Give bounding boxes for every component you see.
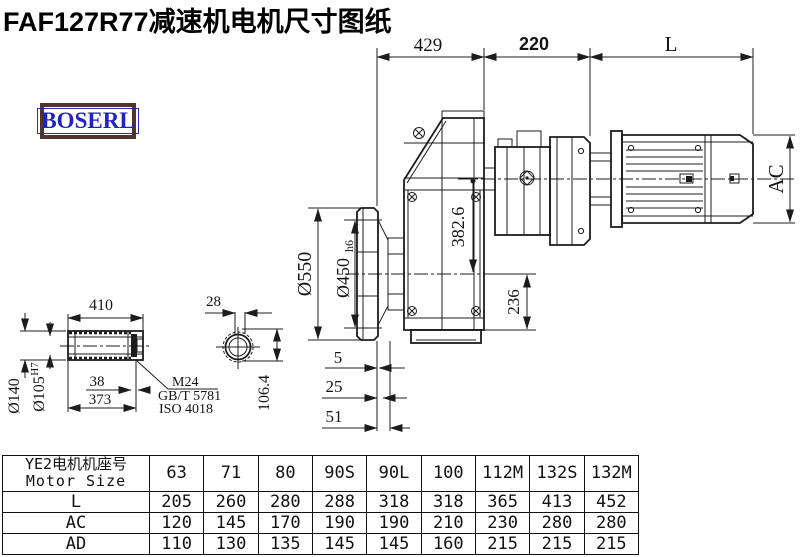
table-cell: 280 (530, 512, 584, 533)
dim-flange-od: Ø550 (294, 252, 316, 296)
dim-key-width: 28 (206, 294, 221, 310)
dim-step-25: 25 (326, 377, 343, 396)
table-cell: 120 (150, 512, 204, 533)
label-bolt: M24 (172, 375, 198, 390)
table-cell: 280 (258, 491, 312, 512)
table-cell: 215 (475, 533, 529, 554)
table-header-motor-size: YE2电机机座号 Motor Size (3, 456, 150, 492)
table-cell: 280 (584, 512, 638, 533)
dim-step-51: 51 (326, 407, 343, 426)
table-header-en: Motor Size (3, 473, 149, 490)
table-header-cn: YE2电机机座号 (3, 456, 149, 473)
input-center-mark-icon (520, 171, 534, 185)
table-cell: 365 (475, 491, 529, 512)
brand-logo-text: BOSERL (37, 108, 138, 134)
gearbox-view (345, 111, 500, 431)
table-cell: 288 (312, 491, 366, 512)
dim-spigot-tolerance: h6 (342, 240, 356, 252)
dim-429: 429 (414, 35, 443, 56)
technical-drawing: 429 220 L (0, 0, 800, 455)
table-cell: 452 (584, 491, 638, 512)
table-col-header: 80 (258, 456, 312, 492)
dim-220: 220 (519, 34, 549, 54)
table-cell: 160 (421, 533, 475, 554)
dim-shaft-od: Ø140 (6, 378, 23, 414)
table-row-AC: AC 120 145 170 190 190 210 230 280 280 (3, 512, 639, 533)
dim-foot-height: 236 (504, 289, 523, 315)
table-col-header: 90L (367, 456, 421, 492)
table-col-header: 71 (204, 456, 258, 492)
dim-step-5: 5 (334, 348, 343, 367)
dim-bore-tolerance: H7 (29, 362, 41, 376)
top-dimensions: 429 220 L (377, 32, 753, 206)
row-label: AC (3, 512, 150, 533)
dim-spigot: Ø450 (333, 258, 353, 298)
table-row-L: L 205 260 280 288 318 318 365 413 452 (3, 491, 639, 512)
table-cell: 260 (204, 491, 258, 512)
dim-shaft-inner-length: 373 (89, 392, 112, 408)
page: 429 220 L (0, 0, 800, 557)
label-bolt-standard-iso: ISO 4018 (159, 402, 213, 417)
table-cell: 215 (530, 533, 584, 554)
table-cell: 135 (258, 533, 312, 554)
row-label: L (3, 491, 150, 512)
dim-shaft-length: 410 (89, 297, 113, 314)
table-col-header: 63 (150, 456, 204, 492)
shaft-dimensions: 410 Ø140 Ø105 H7 38 373 M24 GB/T 5781 IS… (6, 297, 221, 417)
table-cell: 170 (258, 512, 312, 533)
table-cell: 318 (367, 491, 421, 512)
gearbox-dimensions: 382.6 236 (448, 179, 536, 331)
dim-L: L (665, 32, 678, 56)
table-cell: 145 (312, 533, 366, 554)
table-cell: 205 (150, 491, 204, 512)
table-col-header: 132S (530, 456, 584, 492)
table-cell: 215 (584, 533, 638, 554)
dim-key-height: 106.4 (256, 375, 273, 411)
motor-view (458, 131, 795, 227)
table-col-header: 132M (584, 456, 638, 492)
table-cell: 210 (421, 512, 475, 533)
page-title: FAF127R77减速机电机尺寸图纸 (3, 0, 392, 39)
table-cell: 190 (367, 512, 421, 533)
row-label: AD (3, 533, 150, 554)
table-cell: 413 (530, 491, 584, 512)
dim-axis-offset: 382.6 (448, 207, 468, 248)
table-cell: 130 (204, 533, 258, 554)
table-cell: 318 (421, 491, 475, 512)
adapter-view (495, 131, 611, 245)
table-row-AD: AD 110 130 135 145 145 160 215 215 215 (3, 533, 639, 554)
shaft-view (60, 331, 152, 360)
table-header-row: YE2电机机座号 Motor Size 63 71 80 90S 90L 100… (3, 456, 639, 492)
brand-logo: BOSERL (40, 103, 136, 139)
dim-end-cap: 38 (90, 374, 105, 390)
table-col-header: 100 (421, 456, 475, 492)
table-cell: 110 (150, 533, 204, 554)
motor-size-table: YE2电机机座号 Motor Size 63 71 80 90S 90L 100… (2, 455, 639, 555)
dim-motor-height: AC (764, 164, 788, 193)
table-cell: 145 (204, 512, 258, 533)
table-col-header: 112M (475, 456, 529, 492)
flange-dimensions: Ø550 Ø450 h6 5 25 51 (294, 208, 410, 428)
table-cell: 145 (367, 533, 421, 554)
table-cell: 230 (475, 512, 529, 533)
dim-bore: Ø105 (31, 376, 48, 412)
table-col-header: 90S (312, 456, 366, 492)
table-cell: 190 (312, 512, 366, 533)
